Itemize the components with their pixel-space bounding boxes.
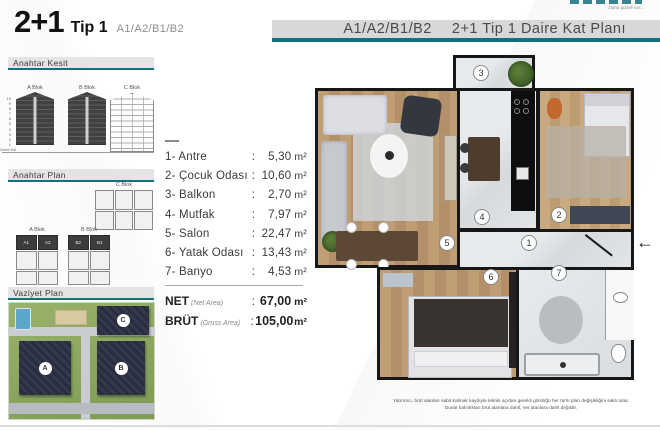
keyplan-a-blok: A1 A2 bbox=[16, 235, 58, 285]
keyplan-unit bbox=[68, 251, 89, 270]
disclaimer-line1: Yatırımcı, brüt alanları sabit kalmak ka… bbox=[378, 398, 644, 405]
entry-door-swing bbox=[585, 234, 613, 257]
header-band: A1/A2/B1/B2 2+1 Tip 1 Daire Kat Planı bbox=[272, 20, 660, 42]
badge-balkon: 3 bbox=[473, 65, 489, 81]
title-unit-codes: A1/A2/B1/B2 bbox=[117, 23, 184, 35]
section-header-anahtar-kesit: Anahtar Kesit bbox=[8, 57, 154, 70]
keyplan-unit bbox=[115, 190, 134, 210]
sofa bbox=[323, 95, 387, 135]
room-row-banyo: 7- Banyo : 4,53 m² bbox=[165, 266, 307, 278]
kitchen-chair bbox=[460, 143, 470, 153]
badge-mutfak: 4 bbox=[474, 209, 490, 225]
pillow bbox=[414, 351, 508, 367]
ground-line bbox=[2, 152, 154, 153]
dresser bbox=[383, 273, 413, 287]
badge-antre: 1 bbox=[521, 235, 537, 251]
total-row-brut: BRÜT(Gross Area) : 105,00 m² bbox=[165, 314, 307, 328]
room-row-yatak-odasi: 6- Yatak Odası : 13,43 m² bbox=[165, 247, 307, 259]
keyplan-b-blok: B2 B1 bbox=[68, 235, 110, 285]
bath-rug bbox=[539, 296, 583, 344]
site-building-a-label: A bbox=[39, 362, 52, 375]
keyplan-unit bbox=[90, 251, 111, 270]
brand-logo: Daha güzeli var... bbox=[558, 0, 644, 14]
keyplan-unit-a2: A2 bbox=[38, 235, 59, 250]
kitchen-chair bbox=[460, 163, 470, 173]
site-building-c: C bbox=[97, 306, 149, 335]
site-building-a: A bbox=[19, 341, 71, 395]
site-building-c-label: C bbox=[117, 314, 130, 327]
floor-numbers: 10 9 8 7 6 5 4 3 2 1 bbox=[2, 96, 11, 147]
sofa-chaise bbox=[321, 141, 347, 245]
sideboard bbox=[444, 135, 457, 201]
elevation-label-a-blok: A Blok bbox=[16, 85, 54, 91]
desk bbox=[570, 206, 630, 224]
bathtub bbox=[524, 353, 600, 376]
badge-banyo: 7 bbox=[551, 265, 567, 281]
elevation-label-c-blok: C Blok bbox=[110, 85, 154, 91]
section-header-vaziyet-plan: Vaziyet Plan bbox=[8, 287, 154, 300]
badge-salon: 5 bbox=[439, 235, 455, 251]
court bbox=[55, 310, 87, 325]
dining-table bbox=[336, 231, 418, 261]
keyplan-unit bbox=[68, 271, 89, 285]
kitchen-sink bbox=[516, 167, 529, 180]
section-header-anahtar-plan: Anahtar Plan bbox=[8, 169, 154, 182]
room-row-antre: 1- Antre : 5,30 m² bbox=[165, 151, 307, 163]
room-yatak-odasi bbox=[377, 267, 519, 380]
armchair bbox=[400, 95, 443, 138]
room-row-cocuk-odasi: 2- Çocuk Odası : 10,60 m² bbox=[165, 170, 307, 182]
site-plan: C A B bbox=[8, 302, 155, 420]
bottom-divider bbox=[0, 425, 660, 427]
site-building-b: B bbox=[97, 341, 145, 395]
plant bbox=[508, 61, 534, 87]
keyplan-label-a-blok: A Blok bbox=[16, 227, 58, 233]
header-unit-codes: A1/A2/B1/B2 bbox=[343, 21, 432, 37]
sink bbox=[613, 292, 628, 303]
bed-master bbox=[408, 296, 512, 378]
room-row-balkon: 3- Balkon : 2,70 m² bbox=[165, 189, 307, 201]
keyplan-unit bbox=[38, 251, 59, 270]
stove-burner bbox=[514, 108, 520, 114]
apartment-floor-plan: 1 2 3 4 5 6 7 bbox=[310, 55, 650, 387]
tray bbox=[385, 151, 394, 160]
blanket bbox=[414, 299, 508, 347]
keyplan-unit bbox=[16, 251, 37, 270]
badge-cocuk-odasi: 2 bbox=[551, 207, 567, 223]
keyplan-unit-a1: A1 bbox=[16, 235, 37, 250]
room-balkon bbox=[453, 55, 535, 91]
total-row-net: NET(Net Area) : 67,00 m² bbox=[165, 294, 307, 308]
kitchen-table bbox=[468, 137, 500, 181]
road bbox=[9, 403, 155, 414]
stove-burner bbox=[523, 99, 529, 105]
disclaimer-text: Yatırımcı, brüt alanları sabit kalmak ka… bbox=[378, 398, 644, 413]
room-area-list: 1- Antre : 5,30 m² 2- Çocuk Odası : 10,6… bbox=[165, 140, 307, 334]
keyplan-label-c-blok: C Blok bbox=[95, 182, 153, 188]
title-main: 2+1 bbox=[14, 4, 64, 40]
room-banyo bbox=[516, 267, 634, 380]
beanbag bbox=[547, 98, 562, 119]
header-plan-title: 2+1 Tip 1 Daire Kat Planı bbox=[452, 21, 626, 37]
dining-chair bbox=[346, 222, 357, 233]
list-dash bbox=[165, 140, 179, 142]
keyplan-unit bbox=[134, 190, 153, 210]
room-mutfak bbox=[457, 88, 539, 231]
drain bbox=[560, 362, 566, 368]
keyplan-unit bbox=[115, 211, 134, 231]
keyplan-unit bbox=[134, 211, 153, 231]
rug bbox=[546, 126, 626, 198]
logo-cropped-mark bbox=[570, 0, 642, 4]
list-separator bbox=[165, 285, 303, 286]
keyplan-unit bbox=[38, 271, 59, 285]
room-row-salon: 5- Salon : 22,47 m² bbox=[165, 228, 307, 240]
elevation-c-blok bbox=[110, 93, 154, 152]
keyplan-c-blok bbox=[95, 190, 153, 230]
elevation-b-blok bbox=[68, 92, 106, 152]
vanity bbox=[605, 270, 634, 340]
site-building-b-label: B bbox=[115, 362, 128, 375]
room-antre bbox=[457, 229, 634, 270]
page-title: 2+1 Tip 1 A1/A2/B1/B2 bbox=[14, 4, 184, 40]
elevation-a-blok bbox=[16, 92, 54, 152]
room-row-mutfak: 4- Mutfak : 7,97 m² bbox=[165, 209, 307, 221]
elevation-label-b-blok: B Blok bbox=[68, 85, 106, 91]
badge-yatak-odasi: 6 bbox=[483, 269, 499, 285]
entrance-arrow-icon: ← bbox=[636, 232, 654, 253]
pool bbox=[15, 308, 31, 330]
stove-burner bbox=[514, 99, 520, 105]
floorplan-sheet: 2+1 Tip 1 A1/A2/B1/B2 A1/A2/B1/B2 2+1 Ti… bbox=[0, 0, 660, 430]
dining-chair bbox=[378, 222, 389, 233]
stove-burner bbox=[523, 108, 529, 114]
disclaimer-line2: Duvar kalınlıkları brüt alanlara dahil, … bbox=[378, 405, 644, 412]
pillow bbox=[585, 94, 629, 106]
keyplan-unit bbox=[16, 271, 37, 285]
title-subtitle: Tip 1 bbox=[71, 19, 108, 37]
toilet bbox=[611, 344, 626, 363]
dining-chair bbox=[346, 259, 357, 270]
keyplan-unit bbox=[95, 190, 114, 210]
logo-tagline: Daha güzeli var... bbox=[608, 5, 644, 10]
keyplan-unit-b1: B1 bbox=[90, 235, 111, 250]
keyplan-unit-b2: B2 bbox=[68, 235, 89, 250]
keyplan-unit bbox=[90, 271, 111, 285]
coffee-table bbox=[369, 133, 409, 179]
keyplan-label-b-blok: B Blok bbox=[68, 227, 110, 233]
